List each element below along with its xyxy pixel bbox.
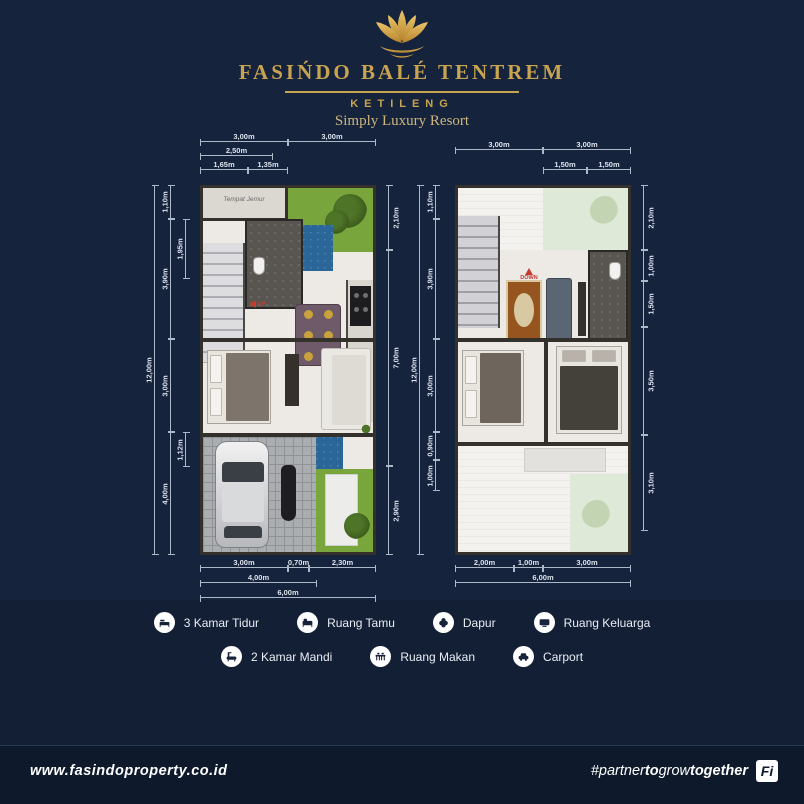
dim-v: 7,00m (388, 250, 389, 466)
footer-right: #partnertogrowtogether Fi (591, 760, 778, 782)
legend-label: Dapur (463, 616, 496, 630)
work-desk (285, 354, 299, 406)
dim-h: 3,00m (543, 149, 631, 150)
living-room-sofa (321, 348, 371, 430)
fish-pond (303, 225, 333, 271)
legend-label: Carport (543, 650, 583, 664)
staircase (458, 216, 500, 328)
website-url: www.fasindoproperty.co.id (30, 763, 228, 779)
legend-item-living-room: Ruang Tamu (297, 612, 395, 633)
legend: 3 Kamar Tidur Ruang Tamu Dapur Ruang Kel… (0, 612, 804, 680)
dim-h: 3,00m (455, 149, 543, 150)
blanket (480, 353, 521, 423)
car-rear-window (224, 526, 262, 538)
gold-divider (285, 91, 519, 93)
dim-h: 1,50m (587, 169, 631, 170)
upper-floor-plan: 3,00m 3,00m 1,50m 1,50m 12,00m 1,10m 3,9… (455, 185, 631, 555)
family-room-rug (506, 280, 542, 340)
sofa-cushion (332, 355, 366, 425)
legend-label: 2 Kamar Mandi (251, 650, 332, 664)
red-arrow-icon (525, 268, 533, 275)
header: FASIŃDO BALÉ TENTREM KETILENG Simply Lux… (0, 8, 804, 130)
garden-view-top (543, 188, 628, 250)
garden-view-bottom (570, 474, 628, 552)
tree-icon (344, 513, 370, 539)
stair-up-marker: UP (249, 300, 266, 308)
interior-wall (544, 338, 548, 442)
hashtag-part: together (690, 763, 748, 779)
stove (350, 286, 371, 326)
dim-v: 3,10m (643, 435, 644, 531)
dining-chairs (304, 310, 313, 319)
dim-h: 6,00m (200, 597, 376, 598)
legend-item-dining-room: Ruang Makan (370, 646, 475, 667)
dim-v: 3,90m (170, 219, 171, 339)
legend-item-family-room: Ruang Keluarga (534, 612, 651, 633)
dim-h: 1,65m (200, 169, 248, 170)
dim-v: 3,00m (435, 339, 436, 432)
legend-item-bedrooms: 3 Kamar Tidur (154, 612, 259, 633)
bedroom-1-bed (207, 350, 271, 424)
carport (203, 437, 316, 552)
car (215, 441, 269, 548)
blanket (560, 366, 618, 430)
bedroom-3-bed (556, 346, 622, 434)
interior-wall (458, 338, 628, 342)
dim-h: 1,35m (248, 169, 288, 170)
kitchen-icon (433, 612, 454, 633)
legend-label: 3 Kamar Tidur (184, 616, 259, 630)
dim-v: 3,90m (435, 219, 436, 339)
legend-item-kitchen: Dapur (433, 612, 496, 633)
bedroom-2-bed (462, 350, 524, 426)
dim-v: 2,90m (388, 466, 389, 555)
legend-item-bathrooms: 2 Kamar Mandi (221, 646, 332, 667)
dim-h: 2,30m (309, 567, 376, 568)
dim-v: 1,00m (435, 460, 436, 491)
legend-label: Ruang Makan (400, 650, 475, 664)
interior-wall (203, 338, 373, 342)
family-room-sofa (546, 278, 572, 342)
ground-floor-plan: 3,00m 3,00m 2,50m 1,65m 1,35m 12,00m 1,1… (200, 185, 376, 555)
dim-v: 4,00m (170, 432, 171, 555)
bed-icon (154, 612, 175, 633)
legend-label: Ruang Keluarga (564, 616, 651, 630)
dim-v: 12,00m (419, 185, 420, 555)
blanket (226, 353, 269, 421)
pillow (210, 388, 222, 416)
tv-icon (534, 612, 555, 633)
legend-row-2: 2 Kamar Mandi Ruang Makan Carport (0, 646, 804, 667)
upper-floor-outline: DOWN (455, 185, 631, 555)
burner-dots (354, 293, 359, 298)
dim-h: 0,70m (288, 567, 309, 568)
location-label: KETILENG (0, 98, 804, 110)
sofa-icon (297, 612, 318, 633)
bathtub-icon (221, 646, 242, 667)
dim-v: 1,95m (185, 219, 186, 279)
car-windshield (222, 462, 264, 482)
dim-h: 4,00m (200, 582, 317, 583)
dim-h: 6,00m (455, 582, 631, 583)
tagline: Simply Luxury Resort (0, 113, 804, 130)
pillow (562, 350, 586, 362)
dim-v: 12,00m (154, 185, 155, 555)
dim-h: 3,00m (200, 567, 288, 568)
dim-v: 1,12m (185, 432, 186, 467)
legend-row-1: 3 Kamar Tidur Ruang Tamu Dapur Ruang Kel… (0, 612, 804, 633)
bathroom (245, 219, 303, 309)
dim-h: 2,00m (455, 567, 514, 568)
dim-v: 2,10m (643, 185, 644, 250)
campaign-hashtag: #partnertogrowtogether (591, 763, 748, 779)
dim-v: 3,50m (643, 327, 644, 435)
pillow (465, 390, 477, 418)
dim-v: 1,50m (643, 281, 644, 327)
hashtag-part: #partner (591, 763, 645, 779)
dim-h: 3,00m (543, 567, 631, 568)
dim-h: 1,00m (514, 567, 543, 568)
dim-h: 3,00m (200, 141, 288, 142)
motorcycle (281, 465, 296, 521)
tree-icon (590, 196, 620, 226)
garden-bottom (316, 469, 373, 552)
dim-h: 3,00m (288, 141, 376, 142)
car-icon (513, 646, 534, 667)
toilet (609, 262, 621, 280)
ground-floor-outline: Tempat Jemur UP (200, 185, 376, 555)
toilet (253, 257, 265, 275)
dim-h: 1,50m (543, 169, 587, 170)
bathroom-upper (588, 250, 628, 342)
red-arrow-icon (249, 300, 256, 308)
pillow (592, 350, 616, 362)
dim-h: 2,50m (200, 155, 273, 156)
legend-label: Ruang Tamu (327, 616, 395, 630)
dim-v: 2,10m (388, 185, 389, 250)
staircase (203, 243, 245, 363)
tree-icon (582, 500, 612, 530)
flyer-page: FASIŃDO BALÉ TENTREM KETILENG Simply Lux… (0, 0, 804, 804)
dim-v: 1,00m (643, 250, 644, 281)
entry-canopy (524, 448, 606, 472)
dining-icon (370, 646, 391, 667)
hashtag-part: grow (659, 763, 690, 779)
legend-item-carport: Carport (513, 646, 583, 667)
dim-v: 1,10m (170, 185, 171, 219)
lotus-logo-icon (360, 8, 444, 58)
dim-v: 1,10m (435, 185, 436, 219)
pillow (465, 356, 477, 384)
brand-title: FASIŃDO BALÉ TENTREM (0, 60, 804, 85)
fasindo-logo-mark: Fi (756, 760, 778, 782)
entry-step (316, 437, 343, 469)
dim-v: 3,00m (170, 339, 171, 432)
laundry-label: Tempat Jemur (203, 196, 285, 203)
hashtag-part: to (645, 763, 659, 779)
dim-v: 0,90m (435, 432, 436, 460)
car-roof (222, 484, 264, 522)
tv-console (578, 282, 586, 336)
laundry-room: Tempat Jemur (203, 188, 288, 221)
pillow (210, 355, 222, 383)
